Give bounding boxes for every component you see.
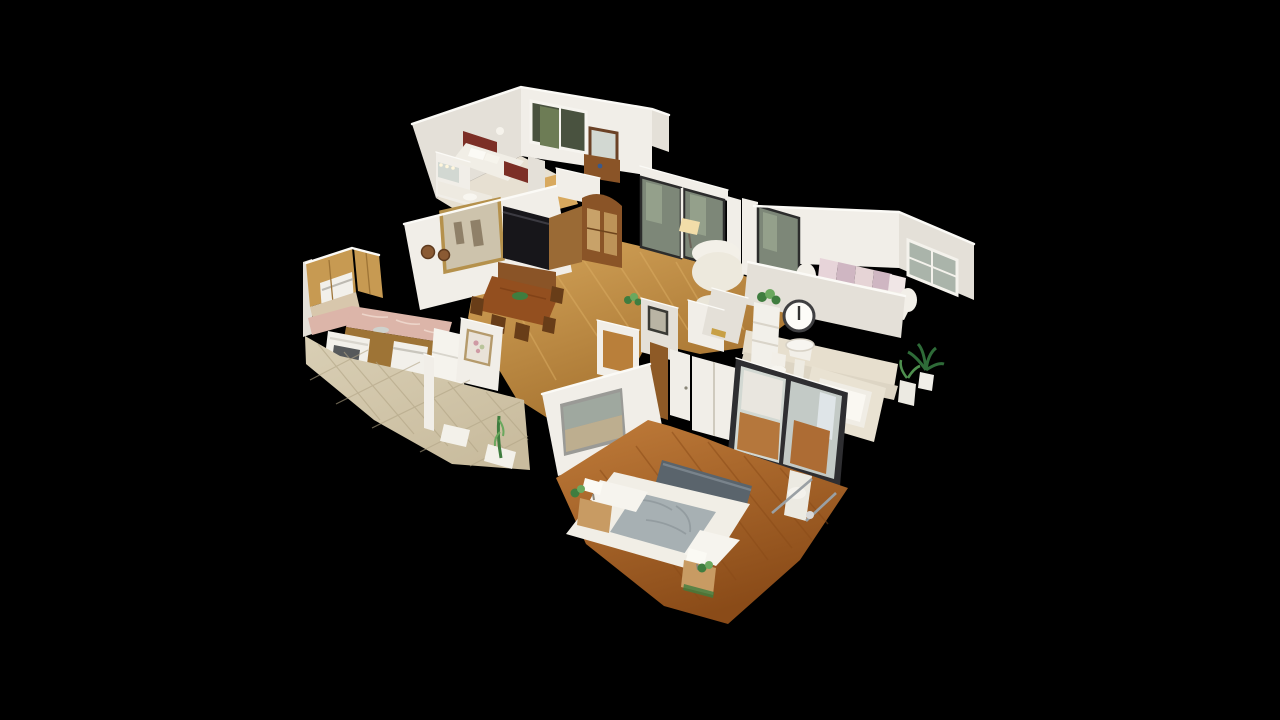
pedestal-sink — [786, 339, 814, 351]
viewer-canvas[interactable]: 3D dollhouse cutaway view of a single-st… — [0, 0, 1280, 720]
guest-corner-wall — [652, 109, 669, 152]
small-framed-photo — [649, 307, 667, 334]
floral-painting — [465, 330, 492, 365]
armchair-body — [692, 252, 744, 292]
white-door — [670, 349, 690, 421]
room-master-bedroom — [542, 356, 848, 624]
pass-through — [603, 330, 633, 374]
dollhouse-render — [0, 0, 1280, 720]
cut-wall-strip — [424, 354, 434, 431]
floor-vase-plant — [898, 360, 920, 406]
window-foliage — [540, 106, 560, 149]
table-centerpiece — [512, 292, 528, 300]
gold-framed-painting — [441, 199, 503, 272]
vanity-sink — [463, 193, 477, 200]
wall-plate — [439, 250, 450, 261]
blue-vase — [598, 164, 603, 169]
wall-plate — [422, 246, 435, 259]
bedside-lamp — [496, 127, 504, 135]
